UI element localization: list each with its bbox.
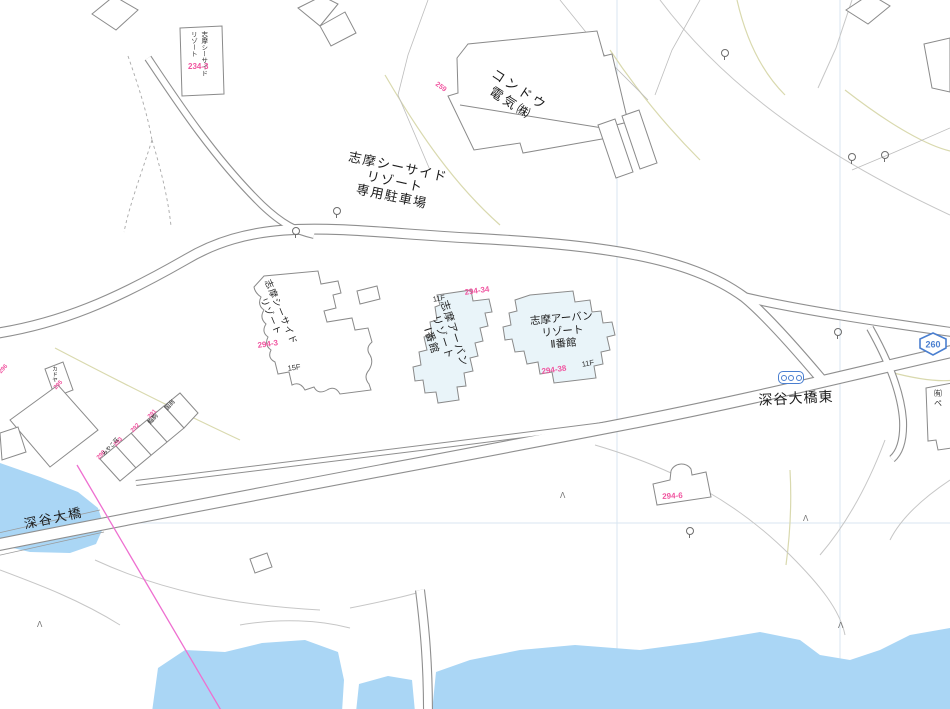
label-signbox: 志摩シーサイド リゾート — [187, 31, 208, 85]
broadleaf-tree-icon — [881, 151, 889, 162]
label-floor-seaside: 15F — [287, 362, 301, 373]
conifer-icon: Λ — [560, 491, 565, 500]
label-urban-resort-2: 志摩アーバン リゾート Ⅱ番館 — [523, 309, 602, 353]
broadleaf-tree-icon — [848, 153, 856, 164]
road-surfaces — [0, 58, 950, 709]
route-260-shield: 260 — [917, 331, 949, 357]
map-linework — [0, 0, 950, 709]
parcel-signbox: 234-3 — [188, 62, 208, 71]
conifer-icon: Λ — [803, 514, 808, 523]
parcel-south-building: 294-6 — [662, 491, 683, 501]
conifer-icon: Λ — [838, 621, 843, 630]
river-water — [0, 463, 950, 709]
broadleaf-tree-icon — [333, 207, 341, 218]
map-canvas[interactable]: コンドウ 電気㈱ 志摩シーサイド リゾート 専用駐車場 志摩シーサイド リゾート… — [0, 0, 950, 709]
broadleaf-tree-icon — [292, 227, 300, 238]
label-yuugen-partial: ㈲ ペ — [934, 389, 942, 410]
conifer-icon: Λ — [37, 620, 42, 629]
route-260-number: 260 — [925, 340, 940, 350]
label-fukaya-ohashi-higashi: 深谷大橋東 — [758, 386, 834, 410]
broadleaf-tree-icon — [834, 328, 842, 339]
broadleaf-tree-icon — [686, 527, 694, 538]
traffic-signal-icon — [778, 371, 804, 384]
broadleaf-tree-icon — [721, 49, 729, 60]
shop-name-kadoya: カドヤ — [50, 366, 58, 390]
